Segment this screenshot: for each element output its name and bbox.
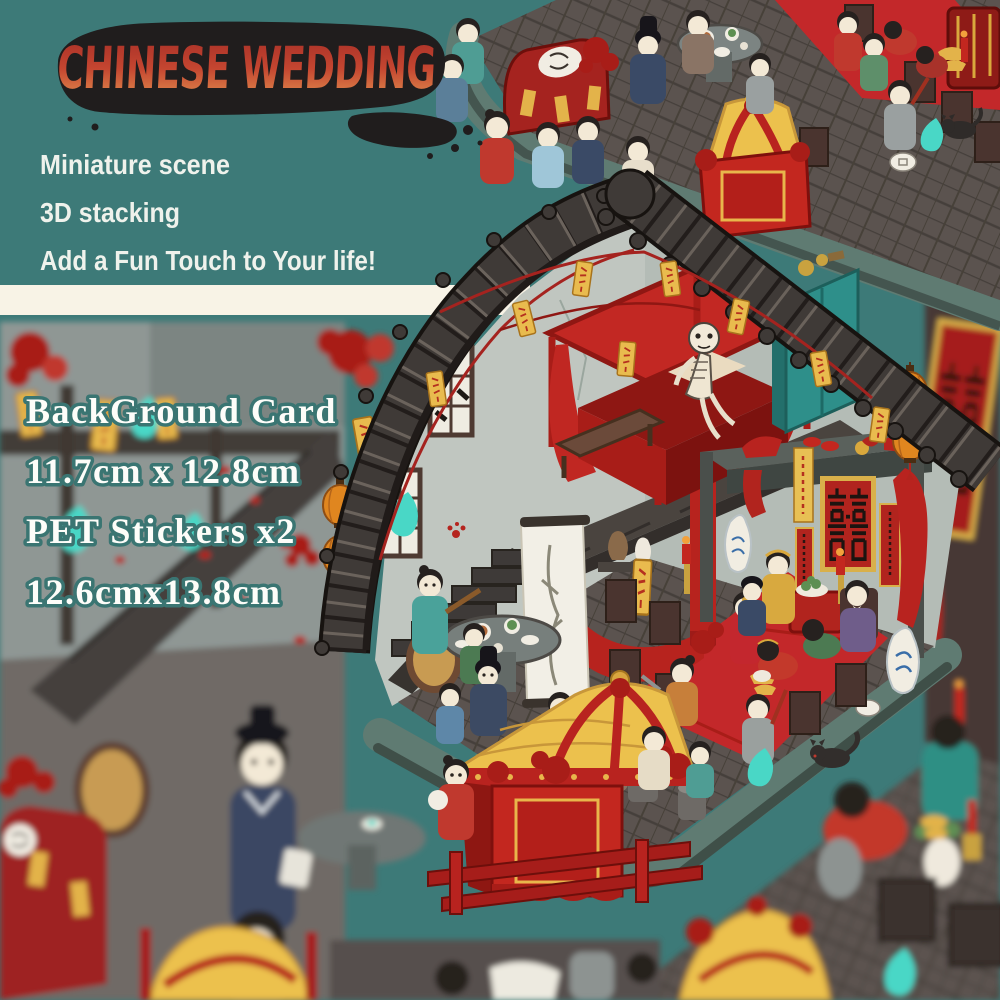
spec-line-2: 11.7cm x 12.8cm xyxy=(26,451,300,491)
spec-line-1: BackGround Card xyxy=(26,391,337,431)
spec-line-3: PET Stickers x2 xyxy=(26,511,296,551)
product-image: CHINESE WEDDING Miniature scene 3D stack… xyxy=(0,0,1000,1000)
tagline-3: Add a Fun Touch to Your life! xyxy=(40,245,376,276)
double-happiness-banner xyxy=(820,476,876,572)
dowry-chest xyxy=(504,37,619,134)
product-image-canvas: CHINESE WEDDING Miniature scene 3D stack… xyxy=(0,0,1000,1000)
scroll-painting xyxy=(520,515,590,708)
tagline-2: 3D stacking xyxy=(40,197,180,228)
logo-title: CHINESE WEDDING xyxy=(56,34,438,102)
tagline-1: Miniature scene xyxy=(40,149,230,180)
porcelain-vase xyxy=(725,515,751,572)
spec-line-4: 12.6cmx13.8cm xyxy=(26,572,281,612)
porcelain-vase xyxy=(887,628,919,693)
